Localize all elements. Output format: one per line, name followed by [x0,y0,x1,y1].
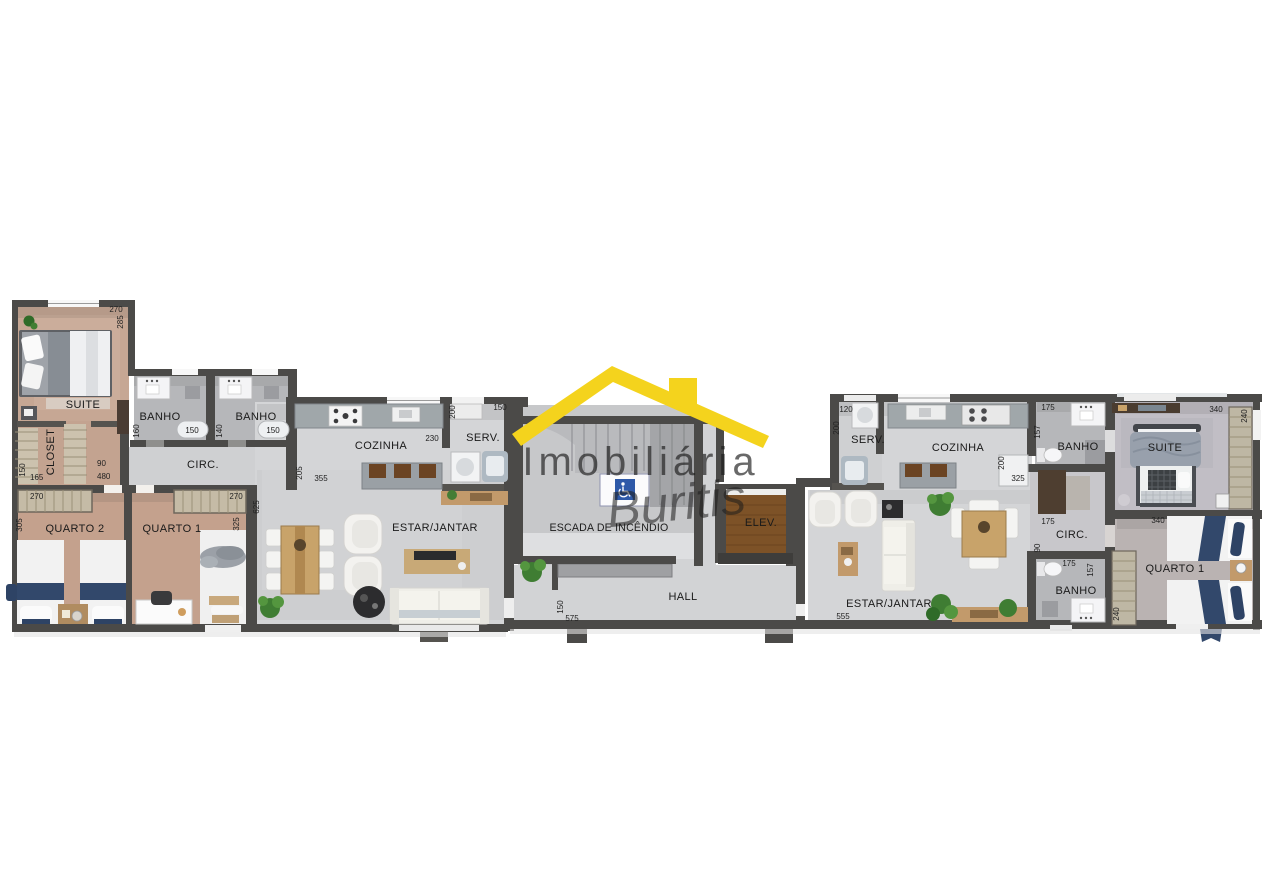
svg-text:COZINHA: COZINHA [355,440,408,452]
svg-text:200: 200 [832,421,841,435]
svg-text:BANHO: BANHO [1055,585,1096,597]
svg-text:CIRC.: CIRC. [187,459,219,471]
svg-text:HALL: HALL [668,591,697,603]
svg-text:160: 160 [132,424,141,438]
svg-text:ELEV.: ELEV. [745,517,777,529]
svg-text:157: 157 [1086,563,1095,577]
svg-text:175: 175 [1041,517,1055,526]
svg-text:240: 240 [1240,409,1249,423]
svg-text:QUARTO 1: QUARTO 1 [1145,563,1204,575]
svg-text:BANHO: BANHO [235,411,276,423]
svg-text:BANHO: BANHO [139,411,180,423]
svg-text:157: 157 [1033,425,1042,439]
svg-text:175: 175 [1041,403,1055,412]
svg-text:325: 325 [232,517,241,531]
svg-text:325: 325 [1011,474,1025,483]
svg-text:270: 270 [30,492,44,501]
svg-text:BANHO: BANHO [1057,441,1098,453]
svg-text:200: 200 [997,456,1006,470]
svg-text:270: 270 [109,305,123,314]
svg-text:CIRC.: CIRC. [1056,529,1088,541]
svg-text:165: 165 [30,473,44,482]
svg-text:SUITE: SUITE [66,399,100,411]
svg-text:200: 200 [448,405,457,419]
svg-text:SERV.: SERV. [851,434,885,446]
svg-text:QUARTO 1: QUARTO 1 [142,523,201,535]
svg-text:625: 625 [252,500,261,514]
svg-text:ESTAR/JANTAR: ESTAR/JANTAR [392,522,478,534]
svg-text:QUARTO 2: QUARTO 2 [45,523,104,535]
svg-text:270: 270 [229,492,243,501]
svg-text:90: 90 [1033,543,1042,552]
svg-text:120: 120 [839,405,853,414]
svg-text:205: 205 [295,466,304,480]
svg-text:COZINHA: COZINHA [932,442,985,454]
svg-text:150: 150 [185,426,199,435]
svg-text:480: 480 [97,472,111,481]
svg-text:CLOSET: CLOSET [45,429,57,475]
svg-text:355: 355 [314,474,328,483]
svg-text:340: 340 [1151,516,1165,525]
svg-text:575: 575 [565,614,579,623]
svg-text:90: 90 [97,459,106,468]
svg-text:305: 305 [15,518,24,532]
svg-text:555: 555 [836,612,850,621]
svg-text:150: 150 [556,600,565,614]
svg-text:150: 150 [266,426,280,435]
svg-text:150: 150 [493,403,507,412]
svg-text:340: 340 [1209,405,1223,414]
svg-text:ESTAR/JANTAR: ESTAR/JANTAR [846,598,932,610]
svg-text:150: 150 [18,463,27,477]
svg-text:240: 240 [1112,607,1121,621]
svg-text:SERV.: SERV. [466,432,500,444]
svg-text:175: 175 [1062,559,1076,568]
svg-text:230: 230 [425,434,439,443]
svg-text:SUITE: SUITE [1148,442,1182,454]
svg-text:140: 140 [215,424,224,438]
svg-text:285: 285 [116,315,125,329]
